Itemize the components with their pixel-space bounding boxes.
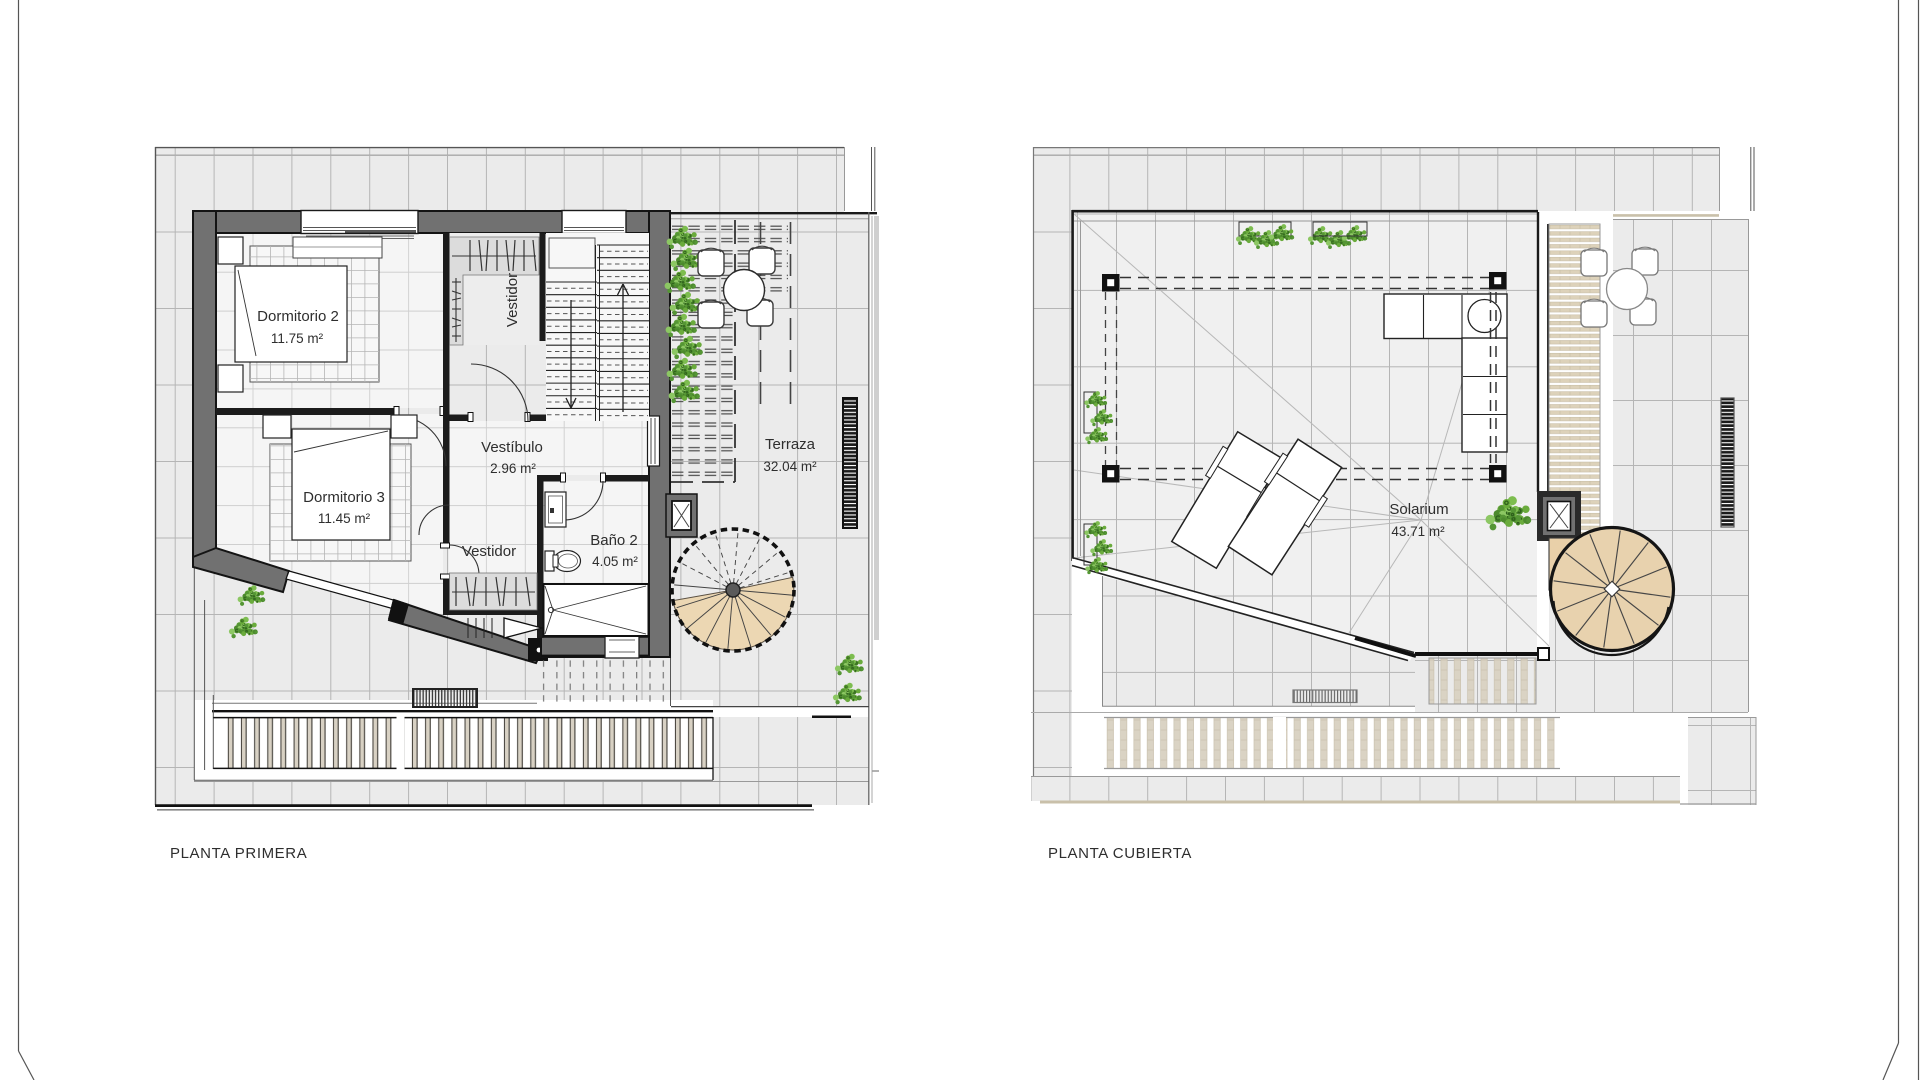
svg-text:Dormitorio 3: Dormitorio 3 (303, 489, 385, 506)
svg-text:Vestíbulo: Vestíbulo (481, 439, 543, 456)
svg-text:Vestidor: Vestidor (462, 543, 516, 560)
svg-text:2.96 m²: 2.96 m² (490, 461, 536, 476)
svg-text:11.45 m²: 11.45 m² (318, 511, 371, 526)
svg-text:11.75 m²: 11.75 m² (271, 331, 324, 346)
svg-text:Baño 2: Baño 2 (590, 532, 638, 549)
svg-text:Dormitorio 2: Dormitorio 2 (257, 308, 339, 325)
svg-text:Vestidor: Vestidor (504, 273, 521, 327)
svg-text:PLANTA CUBIERTA: PLANTA CUBIERTA (1048, 845, 1192, 862)
svg-text:Solarium: Solarium (1389, 501, 1448, 518)
svg-text:PLANTA PRIMERA: PLANTA PRIMERA (170, 845, 307, 862)
svg-text:32.04 m²: 32.04 m² (763, 459, 817, 474)
svg-text:43.71 m²: 43.71 m² (1391, 524, 1445, 539)
svg-text:Terraza: Terraza (765, 436, 816, 453)
svg-text:4.05 m²: 4.05 m² (592, 554, 638, 569)
